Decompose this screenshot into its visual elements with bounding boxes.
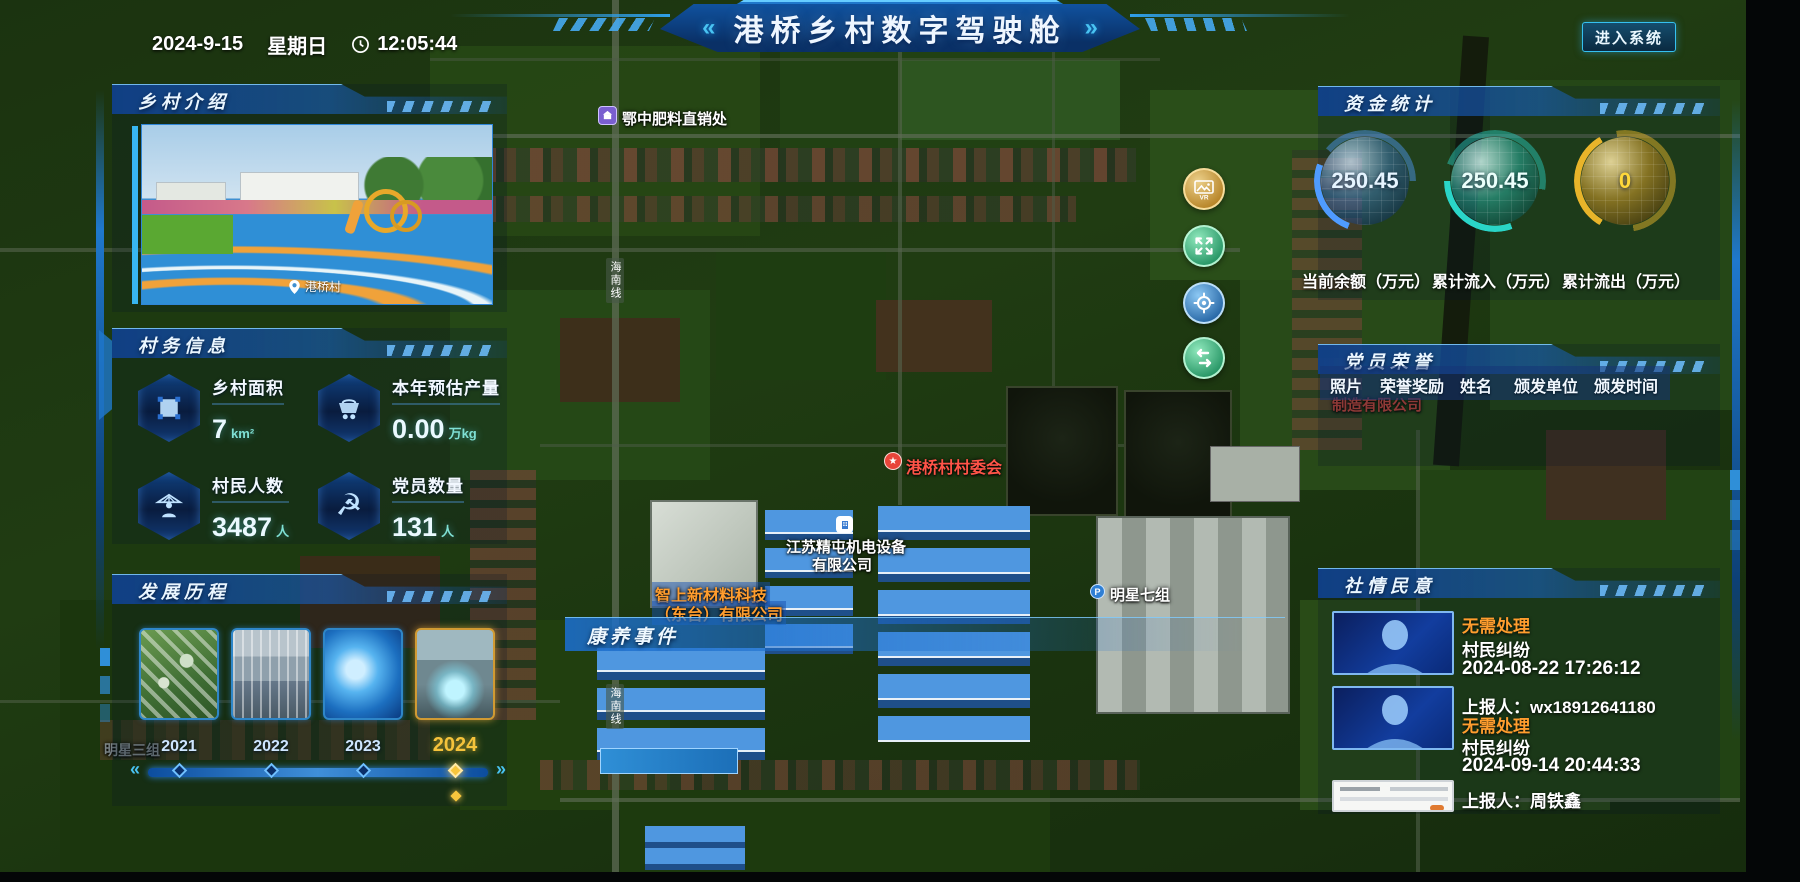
stat-estimated-yield: 本年预估产量 0.00万kg <box>318 374 500 445</box>
area-icon <box>138 374 200 442</box>
map-terrain <box>716 250 886 380</box>
area-glyph <box>154 393 184 423</box>
right-frame-square <box>1730 530 1740 550</box>
map-terrain <box>900 60 1120 140</box>
dashboard-screen: 鄂中肥料直销处 ★ 港桥村村委会 江苏精屯机电设备 有限公司 智上新材料科技 （… <box>0 0 1800 882</box>
datetime-bar: 2024-9-15 星期日 12:05:44 <box>152 30 457 59</box>
gauge-total-inflow: 250.45 <box>1444 130 1546 232</box>
enter-system-button[interactable]: 进入系统 <box>1582 22 1676 52</box>
panel-title-development: 发展历程 <box>138 578 230 604</box>
opinion-item-avatar[interactable] <box>1332 611 1454 675</box>
opinion-item-screenshot[interactable] <box>1332 780 1454 812</box>
stat-value: 131 <box>392 512 437 542</box>
farmer-icon <box>138 472 200 540</box>
svg-text:VR: VR <box>1199 195 1208 202</box>
map-label-village-committee[interactable]: 港桥村村委会 <box>906 454 1002 478</box>
fullscreen-icon <box>1192 234 1216 258</box>
photo-ring-sculpture <box>390 200 422 232</box>
panel-title-public-opinion: 社情民意 <box>1344 572 1436 598</box>
page-title: 港桥乡村数字驾驶舱 <box>734 6 1067 50</box>
stat-value: 0.00 <box>392 414 445 444</box>
person-silhouette-icon <box>1334 613 1454 675</box>
health-events-title: 康养事件 <box>587 622 679 649</box>
timeline-left-arrow[interactable]: « <box>130 759 140 780</box>
clock-icon <box>351 35 370 54</box>
stat-value: 7 <box>212 414 227 444</box>
location-pin-icon <box>289 280 300 294</box>
map-pond <box>1006 386 1118 516</box>
year-2021[interactable]: 2021 <box>139 738 219 756</box>
fullscreen-button[interactable] <box>1183 225 1225 267</box>
switch-arrows-icon <box>1192 346 1216 370</box>
development-thumb-2024[interactable] <box>415 628 495 720</box>
photo-caption: 港桥村 <box>289 278 341 295</box>
map-pool <box>600 748 738 774</box>
map-label-road-hainan-1: 海南线 <box>606 258 624 303</box>
stat-label: 党员数量 <box>392 472 464 503</box>
timeline-slider[interactable]: « » <box>148 768 488 777</box>
screenshot-content-dot <box>1430 805 1444 811</box>
photo-left-edge <box>132 126 138 304</box>
gauge-value: 250.45 <box>1461 168 1528 194</box>
stat-value: 3487 <box>212 512 272 542</box>
map-blue-roofs <box>645 826 745 870</box>
column-name: 姓名 <box>1460 373 1492 397</box>
right-black-strip <box>1746 0 1800 882</box>
title-stripes-decoration <box>387 345 497 356</box>
fertilizer-shop-pin-icon[interactable] <box>598 106 617 125</box>
map-terrain <box>876 300 992 372</box>
header-right-quote: » <box>1085 14 1098 42</box>
column-issue-date: 颁发时间 <box>1594 373 1658 397</box>
right-frame-square <box>1730 470 1740 490</box>
opinion-status: 无需处理 <box>1462 612 1530 637</box>
photo-flowerbed <box>142 200 492 214</box>
development-thumb-2021[interactable] <box>139 628 219 720</box>
left-frame-square <box>100 704 110 722</box>
locate-button[interactable] <box>1183 282 1225 324</box>
village-photo[interactable]: 港桥村 <box>141 124 493 305</box>
map-label-company1-line2[interactable]: 有限公司 <box>812 554 872 575</box>
stat-party-member-count: ☭ 党员数量 131人 <box>318 472 464 543</box>
title-stripes-decoration <box>1600 103 1710 114</box>
layer-switch-button[interactable] <box>1183 337 1225 379</box>
right-frame-square <box>1730 500 1740 520</box>
weekday-text: 星期日 <box>267 30 327 59</box>
header-wing-right <box>1145 18 1247 31</box>
column-photo: 照片 <box>1330 373 1362 397</box>
panel-title-village-intro: 乡村介绍 <box>138 88 230 114</box>
column-honor-award: 荣誉奖励 <box>1380 373 1444 397</box>
opinion-datetime: 2024-08-22 17:26:12 <box>1462 658 1641 680</box>
gauge-current-balance: 250.45 <box>1314 130 1416 232</box>
map-road <box>540 444 1220 447</box>
group7-pin-icon[interactable]: P <box>1090 584 1105 599</box>
map-label-group7[interactable]: 明星七组 <box>1110 584 1170 605</box>
year-2022[interactable]: 2022 <box>231 738 311 756</box>
opinion-item-avatar[interactable] <box>1332 686 1454 750</box>
map-road <box>898 0 902 505</box>
building-icon <box>840 520 850 530</box>
title-stripes-decoration <box>387 591 497 602</box>
gauge-value: 0 <box>1619 168 1631 194</box>
company1-building-icon[interactable] <box>836 516 853 533</box>
header-wing-left <box>553 18 655 31</box>
stat-villager-count: 村民人数 3487人 <box>138 472 289 543</box>
header-line-right <box>1130 14 1350 17</box>
left-frame-square <box>100 676 110 694</box>
map-terrain <box>560 318 680 402</box>
gauge-total-outflow: 0 <box>1574 130 1676 232</box>
date-text: 2024-9-15 <box>152 33 243 56</box>
photo-buildings <box>240 172 359 204</box>
header-title-bar: « 港桥乡村数字驾驶舱 » <box>660 4 1140 52</box>
gauge-label-outflow: 累计流出（万元） <box>1546 268 1706 292</box>
map-warehouse <box>1210 446 1300 502</box>
map-road <box>430 58 1160 61</box>
map-warehouse <box>1096 516 1290 714</box>
farmer-glyph <box>154 491 184 521</box>
opinion-reporter: 上报人：周铁鑫 <box>1462 787 1581 812</box>
village-committee-pin-icon[interactable]: ★ <box>884 452 902 470</box>
header-left-quote: « <box>702 14 715 42</box>
map-village-houses <box>436 148 1136 182</box>
party-honor-table-header: 照片 荣誉奖励 姓名 颁发单位 颁发时间 <box>1320 366 1670 400</box>
party-icon: ☭ <box>318 472 380 540</box>
stat-label: 乡村面积 <box>212 374 284 405</box>
title-stripes-decoration <box>1600 585 1710 596</box>
gauge-value: 250.45 <box>1331 168 1398 194</box>
panel-title-village-info: 村务信息 <box>138 332 230 358</box>
left-frame-notch <box>99 330 112 420</box>
screenshot-content-lines <box>1340 787 1380 791</box>
photo-caption-text: 港桥村 <box>305 278 341 295</box>
development-thumb-2023[interactable] <box>323 628 403 720</box>
year-2024[interactable]: 2024 <box>415 734 495 757</box>
map-label-road-hainan-2: 海南线 <box>606 684 624 729</box>
stat-label: 村民人数 <box>212 472 289 503</box>
header-line-left <box>450 14 670 17</box>
shop-icon <box>602 110 613 121</box>
panel-title-funds: 资金统计 <box>1344 90 1436 116</box>
stat-unit: 人 <box>441 524 454 539</box>
column-issuing-unit: 颁发单位 <box>1514 373 1578 397</box>
photo-lawn <box>142 215 233 254</box>
bottom-black-strip <box>0 872 1800 882</box>
screenshot-content-lines <box>1390 787 1448 791</box>
stat-unit: km² <box>231 426 254 441</box>
health-events-bar: 康养事件 <box>565 617 1285 651</box>
opinion-datetime: 2024-09-14 20:44:33 <box>1462 755 1641 777</box>
map-label-fertilizer-shop[interactable]: 鄂中肥料直销处 <box>622 108 727 129</box>
cart-icon <box>318 374 380 442</box>
person-silhouette-icon <box>1334 688 1454 750</box>
title-stripes-decoration <box>387 101 497 112</box>
vr-view-button[interactable]: VR <box>1183 168 1225 210</box>
year-2023[interactable]: 2023 <box>323 738 403 756</box>
right-frame-decoration <box>1732 100 1740 740</box>
left-frame-square <box>100 648 110 666</box>
timeline-right-arrow[interactable]: » <box>496 759 506 780</box>
stat-unit: 人 <box>276 524 289 539</box>
hammer-sickle-glyph: ☭ <box>336 491 363 521</box>
screenshot-content-lines <box>1340 797 1448 801</box>
map-village-houses <box>436 196 1076 222</box>
vr-image-icon: VR <box>1192 177 1216 201</box>
stat-village-area: 乡村面积 7km² <box>138 374 284 445</box>
development-thumb-2022[interactable] <box>231 628 311 720</box>
stat-label: 本年预估产量 <box>392 374 500 405</box>
locate-target-icon <box>1192 291 1216 315</box>
stat-unit: 万kg <box>449 426 477 441</box>
cart-glyph <box>334 393 364 423</box>
time-text: 12:05:44 <box>377 33 457 56</box>
